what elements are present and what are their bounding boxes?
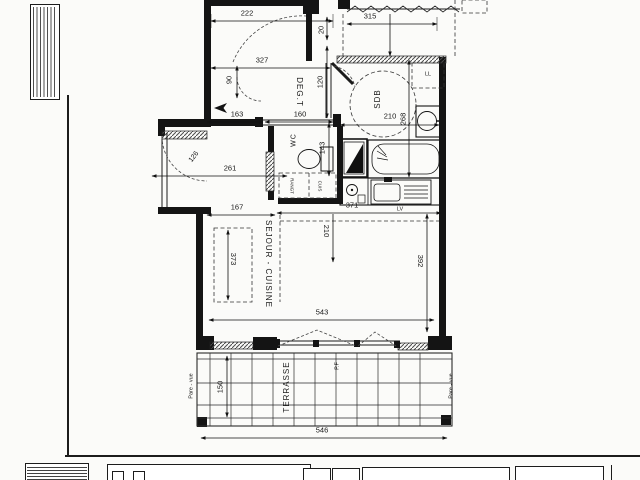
dim-150: 150: [216, 381, 224, 394]
entry-arrow-icon: [214, 103, 227, 113]
dim-163: 163: [231, 110, 244, 118]
dim-543: 543: [316, 308, 329, 316]
dim-210-sdb: 210: [384, 112, 397, 120]
label-pare-vue-left: Pare - vue: [189, 373, 195, 398]
dim-143: 143: [318, 142, 326, 155]
dim-546: 546: [316, 426, 329, 434]
dashed-lines: [214, 0, 487, 302]
titleblock-checkbox-1: [112, 471, 124, 480]
dim-222: 222: [241, 9, 254, 17]
floor-plan-scan: 222 315 327 163 160 210 261 167 371 543 …: [0, 0, 640, 480]
shower: [341, 139, 367, 177]
titleblock-divider: [611, 465, 612, 480]
terrace-grid: [197, 353, 452, 426]
titleblock-legend-box: [25, 463, 89, 480]
titleblock-checkbox-2: [133, 471, 145, 480]
dim-392: 392: [416, 255, 424, 268]
label-washing-machine: LL: [425, 72, 431, 78]
titleblock-cell-2: [332, 468, 360, 480]
room-label-degt: DEG.T: [295, 77, 303, 106]
titleblock-cell-1: [303, 468, 331, 480]
dim-268: 268: [399, 113, 407, 126]
dim-160: 160: [294, 110, 307, 118]
walls: [158, 0, 452, 427]
room-label-wc: WC: [291, 133, 298, 147]
room-label-terrasse: TERRASSE: [283, 361, 291, 412]
dim-371: 371: [346, 201, 359, 209]
dim-261: 261: [224, 164, 237, 172]
label-kitchen-strip: CUIS: [317, 181, 322, 192]
dim-90: 90: [225, 76, 233, 84]
label-dishwasher: LV: [397, 207, 403, 213]
room-label-sejour-cuisine: SEJOUR - CUISINE: [264, 220, 272, 308]
dim-373: 373: [229, 253, 237, 266]
titleblock-stamp-box: [515, 466, 604, 480]
toilet: [298, 147, 333, 171]
bathtub: [368, 140, 443, 178]
label-pare-vue-right: Pare - vue: [449, 373, 455, 398]
dim-120: 120: [316, 76, 324, 89]
dim-167: 167: [231, 203, 244, 211]
label-french-door: P.F: [335, 362, 341, 370]
floorplan-linework: [0, 0, 640, 480]
titleblock-logo-box: [362, 467, 510, 480]
dim-210-sejour: 210: [322, 225, 330, 238]
washbasin: [416, 106, 441, 137]
dim-315: 315: [364, 12, 377, 20]
dim-327: 327: [256, 56, 269, 64]
label-storage: RANGT: [289, 178, 294, 194]
legend-illegible-text: [27, 465, 87, 480]
room-label-sdb: SDB: [374, 89, 382, 108]
dim-20: 20: [317, 26, 325, 34]
